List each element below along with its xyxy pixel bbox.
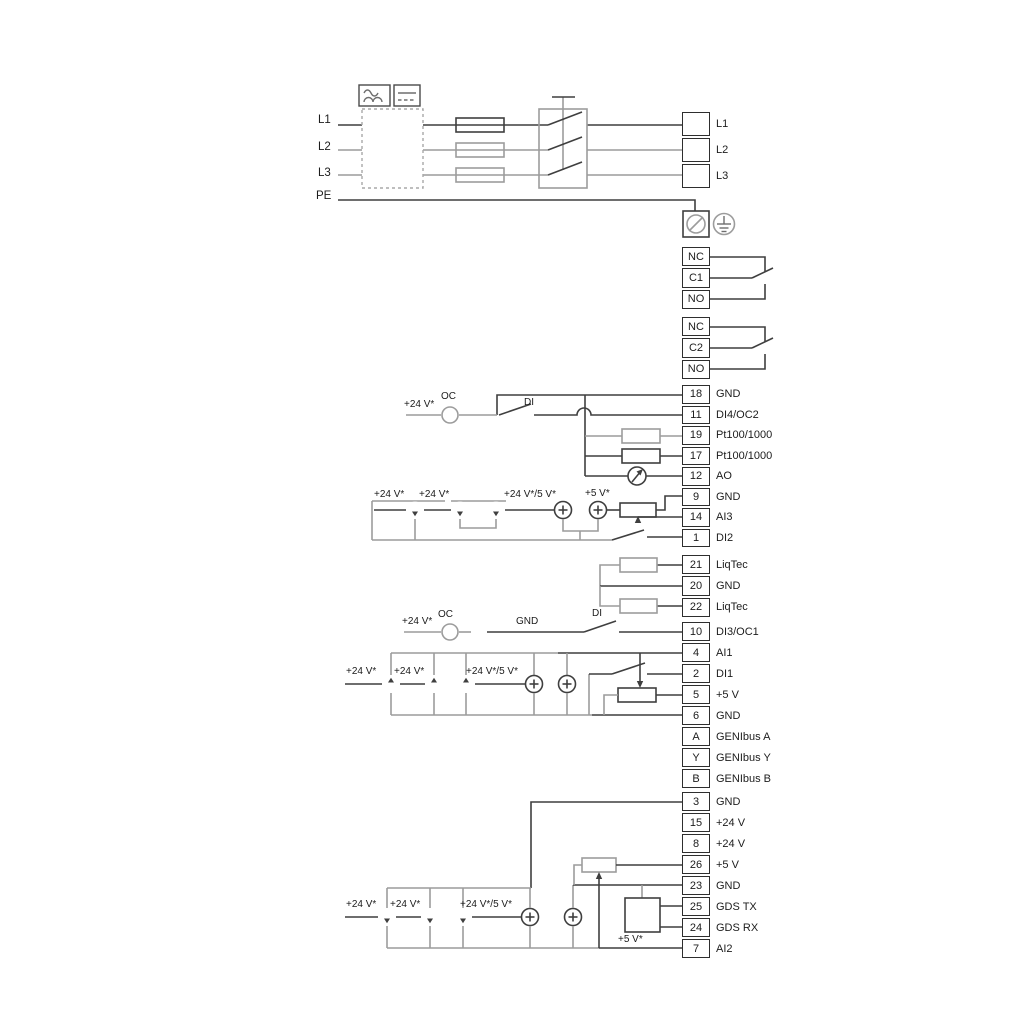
fuse-l1: [456, 118, 504, 132]
annotation-24v-5v: +24 V*/5 V*: [504, 489, 556, 500]
terminal-row: NO: [682, 290, 710, 309]
pt100-sensor-1: [585, 429, 682, 443]
terminal-label: GND: [716, 491, 740, 503]
terminal-row: 24 GDS RX: [682, 918, 710, 937]
terminal-row: A GENIbus A: [682, 727, 710, 746]
terminal-row: NC: [682, 317, 710, 336]
terminal-number: 7: [682, 939, 710, 958]
terminal-number: 2: [682, 664, 710, 683]
di2-switch: [612, 530, 644, 540]
terminal-label: GND: [716, 796, 740, 808]
terminal-row: 22 LiqTec: [682, 598, 710, 617]
terminal-row: 8 +24 V: [682, 834, 710, 853]
terminal-cell: [682, 138, 710, 162]
terminal-label: L2: [716, 144, 728, 156]
wiring-diagram: L1 L2 L3 NC C1 NO NC C2 NO 18 GND: [0, 0, 1024, 1024]
terminal-number: 3: [682, 792, 710, 811]
filter-box: [362, 109, 423, 188]
annotation-5v: +5 V*: [618, 934, 643, 945]
terminal-row: C2: [682, 338, 710, 357]
oc-circle: [442, 407, 458, 423]
terminal-number: 25: [682, 897, 710, 916]
terminal-row: 23 GND: [682, 876, 710, 895]
terminal-row: 25 GDS TX: [682, 897, 710, 916]
terminal-row: NC: [682, 247, 710, 266]
terminal-row: 2 DI1: [682, 664, 710, 683]
terminal-row: 21 LiqTec: [682, 555, 710, 574]
terminal-label: Pt100/1000: [716, 429, 772, 441]
di4-wire: [534, 408, 682, 415]
ao-meter-icon: [585, 467, 682, 485]
terminal-label: LiqTec: [716, 559, 748, 571]
terminal-label: AI2: [716, 943, 733, 955]
terminal-label: +5 V: [716, 689, 739, 701]
terminal-label: L3: [716, 170, 728, 182]
terminal-number: 8: [682, 834, 710, 853]
terminal-label: Pt100/1000: [716, 450, 772, 462]
terminal-row: NO: [682, 360, 710, 379]
terminal-label: DI1: [716, 668, 733, 680]
liqtec-sensor-1: [600, 558, 682, 586]
ai1-sensor-row: [345, 653, 682, 715]
oc-circle: [442, 624, 458, 640]
earth-ground-icon: [714, 214, 735, 235]
terminal-label: GDS RX: [716, 922, 758, 934]
terminal-block-relay2: NC C2 NO: [682, 317, 710, 379]
fuse-l3: [456, 168, 504, 182]
power-input-label-l2: L2: [318, 141, 331, 153]
annotation-24v: +24 V*: [374, 489, 404, 500]
annotation-oc: OC: [441, 391, 456, 402]
terminal-label: DI4/OC2: [716, 409, 759, 421]
terminal-label: DI3/OC1: [716, 626, 759, 638]
annotation-24v: +24 V*: [419, 489, 449, 500]
annotation-24v: +24 V*: [404, 399, 434, 410]
di3-switch: [584, 621, 616, 632]
dc-symbol-box: [394, 85, 420, 106]
power-section: [338, 85, 735, 237]
ac-symbol-box: [359, 85, 390, 106]
terminal-number: 14: [682, 508, 710, 527]
terminal-cell: [682, 112, 710, 136]
annotation-24v: +24 V*: [346, 666, 376, 677]
terminal-cell: NO: [682, 360, 710, 379]
wiring-svg: [0, 0, 1024, 1024]
terminal-label: GENIbus Y: [716, 752, 771, 764]
terminal-number: B: [682, 769, 710, 788]
terminal-label: GND: [716, 880, 740, 892]
terminal-number: 26: [682, 855, 710, 874]
terminal-cell: C2: [682, 338, 710, 357]
ai1-potentiometer: [618, 688, 656, 702]
terminal-cell: NC: [682, 317, 710, 336]
power-input-label-l1: L1: [318, 114, 331, 126]
terminal-number: Y: [682, 748, 710, 767]
annotation-24v: +24 V*: [346, 899, 376, 910]
terminal-row: 18 GND: [682, 385, 710, 404]
liqtec-section: [600, 558, 682, 613]
terminal-row: 12 AO: [682, 467, 710, 486]
annotation-24v: +24 V*: [390, 899, 420, 910]
terminal-row: C1: [682, 268, 710, 287]
terminal-row: 14 AI3: [682, 508, 710, 527]
terminal-number: 23: [682, 876, 710, 895]
terminal-row: 9 GND: [682, 488, 710, 507]
terminal-label: DI2: [716, 532, 733, 544]
screw-terminal-icon: [683, 211, 709, 237]
terminal-row: L3: [682, 164, 710, 188]
annotation-di: DI: [524, 397, 534, 408]
terminal-number: 6: [682, 706, 710, 725]
terminal-cell: C1: [682, 268, 710, 287]
annotation-24v: +24 V*: [402, 616, 432, 627]
terminal-number: 22: [682, 598, 710, 617]
terminal-row: 10 DI3/OC1: [682, 622, 710, 641]
annotation-24v-5v: +24 V*/5 V*: [466, 666, 518, 677]
terminal-row: 4 AI1: [682, 643, 710, 662]
ai3-potentiometer: [620, 503, 656, 517]
terminal-row: 3 GND: [682, 792, 710, 811]
pt100-sensor-2: [585, 449, 682, 463]
terminal-row: 6 GND: [682, 706, 710, 725]
ai3-sensor-row: [372, 496, 682, 540]
terminal-label: GND: [716, 580, 740, 592]
terminal-row: 17 Pt100/1000: [682, 447, 710, 466]
terminal-block-io1: 18 GND 11 DI4/OC2 19 Pt100/1000 17 Pt100…: [682, 385, 710, 547]
terminal-number: 12: [682, 467, 710, 486]
terminal-row: 19 Pt100/1000: [682, 426, 710, 445]
io3-section: [345, 802, 682, 948]
terminal-number: 5: [682, 685, 710, 704]
terminal-label: +5 V: [716, 859, 739, 871]
terminal-number: 4: [682, 643, 710, 662]
terminal-number: 17: [682, 447, 710, 466]
terminal-cell: [682, 164, 710, 188]
annotation-oc: OC: [438, 609, 453, 620]
terminal-number: 15: [682, 813, 710, 832]
terminal-row: Y GENIbus Y: [682, 748, 710, 767]
annotation-24v-5v: +24 V*/5 V*: [460, 899, 512, 910]
terminal-row: 11 DI4/OC2: [682, 406, 710, 425]
terminal-label: AO: [716, 470, 732, 482]
terminal-number: 24: [682, 918, 710, 937]
terminal-label: GND: [716, 710, 740, 722]
terminal-label: +24 V: [716, 817, 745, 829]
terminal-number: 1: [682, 529, 710, 548]
terminal-label: LiqTec: [716, 601, 748, 613]
terminal-label: GENIbus A: [716, 731, 770, 743]
terminal-block-relay1: NC C1 NO: [682, 247, 710, 309]
terminal-row: L2: [682, 138, 710, 162]
terminal-row: B GENIbus B: [682, 769, 710, 788]
pe-wire: [338, 200, 695, 211]
terminal-cell: NC: [682, 247, 710, 266]
terminal-row: 5 +5 V: [682, 685, 710, 704]
gds-sensor-box: [625, 885, 682, 932]
terminal-row: 15 +24 V: [682, 813, 710, 832]
terminal-number: 21: [682, 555, 710, 574]
terminal-label: GENIbus B: [716, 773, 771, 785]
terminal-cell: NO: [682, 290, 710, 309]
fuse-l2: [456, 143, 504, 157]
terminal-number: 9: [682, 488, 710, 507]
terminal-row: 1 DI2: [682, 529, 710, 548]
power-input-label-l3: L3: [318, 167, 331, 179]
relay2-contact: [710, 327, 773, 369]
terminal-number: 18: [682, 385, 710, 404]
power-input-label-pe: PE: [316, 190, 331, 202]
terminal-block-liqtec: 21 LiqTec 20 GND 22 LiqTec: [682, 555, 710, 617]
terminal-label: GDS TX: [716, 901, 757, 913]
terminal-label: AI3: [716, 511, 733, 523]
annotation-gnd: GND: [516, 616, 538, 627]
terminal-number: A: [682, 727, 710, 746]
liqtec-sensor-2: [600, 586, 682, 613]
terminal-block-io2: 10 DI3/OC1 4 AI1 2 DI1 5 +5 V 6 GND A GE…: [682, 622, 710, 788]
terminal-number: 19: [682, 426, 710, 445]
terminal-row: L1: [682, 112, 710, 136]
io1-section: [372, 395, 682, 540]
terminal-label: AI1: [716, 647, 733, 659]
terminal-row: 26 +5 V: [682, 855, 710, 874]
terminal-number: 10: [682, 622, 710, 641]
terminal-row: 7 AI2: [682, 939, 710, 958]
terminal-block-io3: 3 GND 15 +24 V 8 +24 V 26 +5 V 23 GND 25…: [682, 792, 710, 958]
terminal-row: 20 GND: [682, 576, 710, 595]
terminal-label: +24 V: [716, 838, 745, 850]
terminal-number: 20: [682, 576, 710, 595]
annotation-di: DI: [592, 608, 602, 619]
relay1-contact: [710, 257, 773, 299]
terminal-block-power: L1 L2 L3: [682, 112, 710, 188]
di3-row: [404, 621, 682, 640]
terminal-label: GND: [716, 388, 740, 400]
gnd3-wire: [531, 802, 682, 888]
annotation-24v: +24 V*: [394, 666, 424, 677]
terminal-label: L1: [716, 118, 728, 130]
terminal-number: 11: [682, 406, 710, 425]
annotation-5v: +5 V*: [585, 488, 610, 499]
